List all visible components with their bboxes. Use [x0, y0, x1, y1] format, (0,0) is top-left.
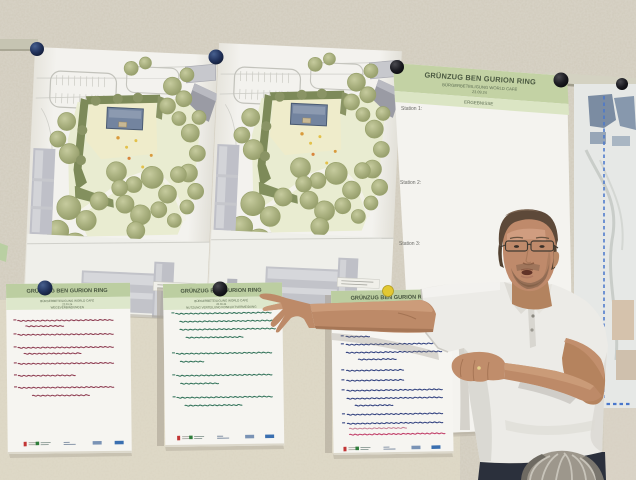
svg-text:WEGEVERBINDUNGEN: WEGEVERBINDUNGEN [51, 305, 84, 309]
svg-text:Station 2:: Station 2: [400, 180, 421, 186]
svg-text:Station 3:: Station 3: [399, 241, 420, 247]
svg-text:Station 1:: Station 1: [401, 106, 422, 112]
